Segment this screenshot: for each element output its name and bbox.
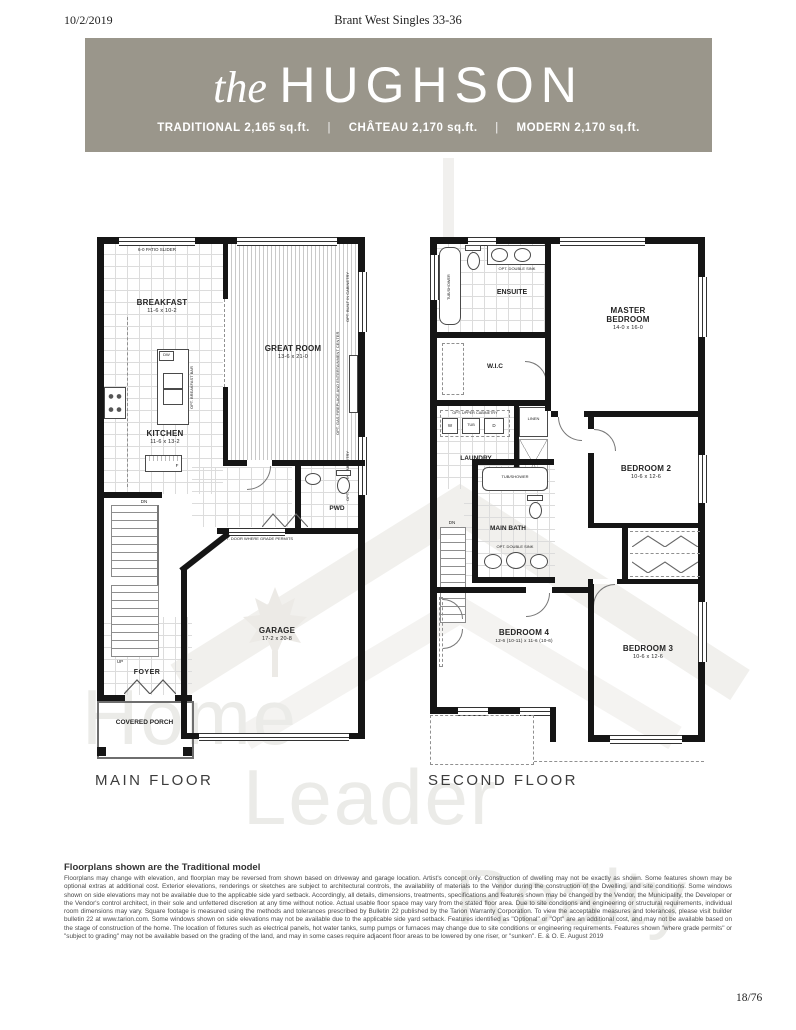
- wall-great-room-bottom: [223, 460, 365, 466]
- wall-ensuite-bottom: [430, 332, 551, 338]
- room-name: KITCHEN: [147, 429, 184, 438]
- main-floor-plan: 6-0 PATIO SLIDER BREAKFAST 11-6 x 10-2 G…: [97, 237, 368, 762]
- island-sink-2: [163, 389, 183, 405]
- bed3-door-arc: [593, 584, 615, 606]
- spec-separator: |: [495, 122, 499, 134]
- opt-breakfast-bar-label: OPT. BREAKFAST BAR: [190, 352, 194, 424]
- page-number: 18/76: [736, 992, 762, 1004]
- wall-left-2: [430, 237, 437, 714]
- closet-shelf-bottom: [630, 576, 700, 577]
- disclaimer-heading: Floorplans shown are the Traditional mod…: [64, 862, 732, 873]
- opt-cabinetry-top-label: OPT. BUILT IN CABINETRY: [346, 261, 350, 333]
- document-title: Brant West Singles 33-36: [0, 13, 796, 28]
- patio-slider-label: 6-0 PATIO SLIDER: [121, 247, 193, 252]
- bath-toilet: [529, 502, 542, 519]
- opt-upper-cabinetry-label: OPT. UPPER CABINETRY: [439, 411, 511, 415]
- model-spec-modern: MODERN 2,170 sq.ft.: [517, 122, 640, 134]
- wic-door-arc: [525, 361, 547, 383]
- spec-separator: |: [328, 122, 332, 134]
- hall-closet-bifold-door: [262, 513, 308, 527]
- room-dims: 14-0 x 16-0: [588, 325, 668, 331]
- wall-bath-top: [474, 459, 554, 465]
- bath-sink-1: [484, 554, 502, 569]
- opt-fireplace-bump: [349, 355, 358, 413]
- closet-shelf-top: [630, 531, 700, 532]
- opt-fireplace-label: OPT. GAS FIREPLACE AND ENTERTAINMENT CEN…: [335, 333, 348, 435]
- master-window: [560, 237, 645, 246]
- room-dims: 17-2 x 20-8: [235, 636, 319, 642]
- model-sqft: 2,170 sq.ft.: [574, 122, 639, 134]
- floorplan-page: { "page": { "date": "10/2/2019", "header…: [0, 0, 796, 1030]
- covered-porch-label: COVERED PORCH: [107, 719, 182, 726]
- roof-outline-dashed-line: [534, 761, 704, 762]
- washer-label: W: [442, 423, 458, 428]
- model-title: the HUGHSON: [85, 56, 712, 114]
- wall-kitchen-bottom: [104, 492, 162, 498]
- wall-master-left: [545, 244, 551, 411]
- bath-sink-2: [506, 552, 526, 569]
- porch-post-right: [183, 747, 192, 756]
- stairs-up-label: UP: [113, 659, 127, 664]
- bedroom3-side-window: [698, 602, 707, 662]
- front-door-double: [124, 679, 176, 694]
- watermark-chimney-shape: [443, 158, 454, 238]
- kitchen-label: KITCHEN 11-6 x 13-2: [130, 430, 200, 445]
- master-label: MASTER BEDROOM 14-0 x 16-0: [588, 307, 668, 331]
- wall-bath-bottom: [472, 577, 555, 583]
- wic-shelving: [442, 343, 464, 395]
- wall-left: [97, 237, 104, 701]
- roof-outline-dashed: [430, 715, 534, 765]
- covered-porch-outline: [97, 701, 194, 759]
- opt-archway: [224, 299, 225, 387]
- linen-label: LINEN: [519, 417, 548, 421]
- bed2-door-arc: [594, 429, 616, 451]
- wall-closet-left: [622, 528, 628, 579]
- ensuite-sink-1: [491, 248, 508, 262]
- wall-bed2-bottom: [588, 523, 705, 528]
- room-dims: 12-6 (10-11) x 11-6 (10-6): [478, 638, 570, 643]
- fridge-label: F: [173, 463, 181, 468]
- model-label: MODERN: [517, 122, 571, 134]
- foyer-label: FOYER: [121, 669, 173, 677]
- bedroom3-window: [610, 735, 682, 744]
- dishwasher-label: DW: [159, 353, 174, 357]
- powder-toilet-tank: [336, 470, 351, 476]
- linen-closet: [519, 407, 548, 437]
- breakfast-label: BREAKFAST 11-6 x 10-2: [122, 299, 202, 314]
- bedroom2-window: [698, 455, 707, 503]
- wall-bath-left: [472, 459, 478, 583]
- island-sink: [163, 373, 183, 389]
- wall-breakfast-divider-bottom: [223, 387, 228, 460]
- ensuite-opt-double-sink-label: OPT. DOUBLE SINK: [486, 267, 548, 271]
- bed4-closet-door-2: [443, 629, 463, 649]
- model-title-name: HUGHSON: [279, 57, 584, 113]
- powder-label: PWD: [319, 505, 355, 512]
- powder-sink: [305, 473, 321, 485]
- wall-bed4-right-stub: [550, 707, 556, 742]
- great-room-window: [237, 237, 337, 246]
- bath-toilet-tank: [527, 495, 543, 501]
- wall-bed3-left: [588, 584, 594, 735]
- room-name: BEDROOM 4: [499, 628, 549, 637]
- stairs-down-label: DN: [137, 499, 151, 504]
- wall-breakfast-divider-top: [223, 244, 228, 299]
- bedroom3-label: BEDROOM 3 10-6 x 12-6: [612, 645, 684, 660]
- model-label: CHÂTEAU: [349, 122, 409, 134]
- model-sqft: 2,170 sq.ft.: [412, 122, 477, 134]
- wic-label: W.I.C: [470, 363, 520, 370]
- model-spec-chateau: CHÂTEAU 2,170 sq.ft.: [349, 122, 482, 134]
- bedroom2-label: BEDROOM 2 10-6 x 12-6: [610, 465, 682, 480]
- disclaimer-block: Floorplans shown are the Traditional mod…: [64, 862, 732, 941]
- master-side-window: [698, 277, 707, 337]
- model-specs-row: TRADITIONAL 2,165 sq.ft. | CHÂTEAU 2,170…: [85, 122, 712, 134]
- model-title-prefix: the: [213, 63, 267, 112]
- model-banner: the HUGHSON TRADITIONAL 2,165 sq.ft. | C…: [85, 38, 712, 152]
- stairs-down-2-label: DN: [442, 520, 462, 525]
- wall-bed4-top: [436, 587, 588, 593]
- room-dims: 13-6 x 21-0: [252, 354, 334, 360]
- disclaimer-body: Floorplans may change with elevation, an…: [64, 875, 732, 941]
- stairs-up-flight: [111, 585, 159, 657]
- bed3-closet-bifold: [632, 561, 698, 573]
- opt-cabinetry-bottom-label: OPT. BUILT IN CABINETRY: [346, 440, 350, 512]
- ensuite-sink-2: [514, 248, 531, 262]
- opt-grade-door: [229, 528, 285, 536]
- bed2-closet-bifold: [632, 535, 698, 547]
- ensuite-label: ENSUITE: [482, 289, 542, 297]
- room-dims: 10-6 x 12-6: [612, 654, 684, 660]
- room-name: BEDROOM 2: [621, 464, 671, 473]
- model-spec-traditional: TRADITIONAL 2,165 sq.ft.: [157, 122, 313, 134]
- garage-door: [199, 733, 349, 741]
- bath-tub-label: TUB/SHOWER: [484, 475, 546, 479]
- great-room-side-window-1: [358, 272, 367, 332]
- garage-label: GARAGE 17-2 x 20-8: [235, 627, 319, 642]
- room-dims: 10-6 x 12-6: [610, 474, 682, 480]
- opt-grade-door-label: OPT. DOOR WHERE GRADE PERMITS: [219, 537, 295, 541]
- bath-sink-3: [530, 554, 548, 569]
- model-label: TRADITIONAL: [157, 122, 240, 134]
- stairs-down-flight: [111, 505, 159, 577]
- ensuite-toilet-tank: [465, 245, 481, 251]
- great-room-side-window-2: [358, 437, 367, 495]
- ensuite-tub-label: TUB/SHOWER: [447, 259, 451, 315]
- powder-toilet: [337, 477, 350, 494]
- closet-shelf-mid: [630, 553, 700, 554]
- room-name: MASTER BEDROOM: [598, 307, 658, 325]
- model-sqft: 2,165 sq.ft.: [244, 122, 309, 134]
- room-name: BEDROOM 3: [623, 644, 673, 653]
- patio-slider-window: [119, 237, 195, 246]
- kitchen-counter: [127, 317, 128, 487]
- second-floor-plan: TUB/SHOWER OPT. DOUBLE SINK ENSUITE W.I.…: [430, 237, 705, 772]
- wall-garage-left: [181, 567, 187, 739]
- great-room-label: GREAT ROOM 13-6 x 21-0: [252, 345, 334, 360]
- room-name: GARAGE: [259, 626, 295, 635]
- cooktop: [104, 387, 126, 419]
- dryer-label: D: [484, 423, 504, 428]
- room-dims: 11-6 x 13-2: [130, 439, 200, 445]
- room-name: GREAT ROOM: [265, 344, 322, 353]
- bedroom4-label: BEDROOM 4 12-6 (10-11) x 11-6 (10-6): [478, 629, 570, 643]
- second-floor-caption: SECOND FLOOR: [428, 772, 578, 789]
- bath-opt-double-sink-label: OPT. DOUBLE SINK: [482, 545, 548, 549]
- wall-wic-bottom: [430, 400, 551, 406]
- main-bath-label: MAIN BATH: [488, 525, 528, 532]
- bed4-door-arc: [526, 593, 550, 617]
- main-floor-caption: MAIN FLOOR: [95, 772, 213, 789]
- ensuite-toilet: [467, 252, 480, 270]
- room-name: BREAKFAST: [137, 298, 188, 307]
- room-dims: 11-6 x 10-2: [122, 308, 202, 314]
- tub-window: [430, 255, 439, 300]
- laundry-tub-label: TUB: [462, 423, 480, 427]
- master-door-arc: [558, 417, 582, 441]
- porch-post-left: [97, 747, 106, 756]
